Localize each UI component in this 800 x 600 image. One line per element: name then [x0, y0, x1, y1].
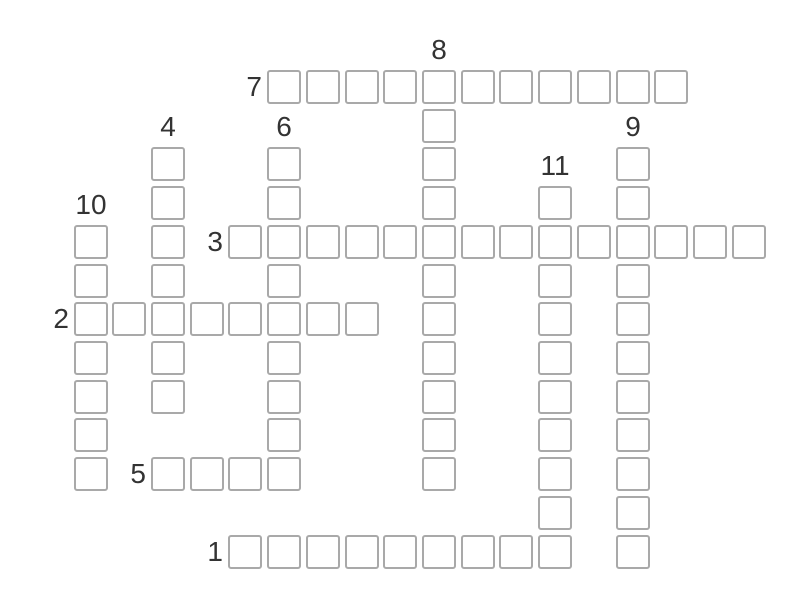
crossword-cell[interactable] [422, 380, 456, 414]
crossword-cell[interactable] [74, 380, 108, 414]
crossword-cell[interactable] [267, 302, 301, 336]
crossword-cell[interactable] [306, 70, 340, 104]
crossword-cell[interactable] [461, 70, 495, 104]
clue-number-6: 6 [254, 111, 314, 143]
crossword-cell[interactable] [190, 457, 224, 491]
crossword-cell[interactable] [267, 535, 301, 569]
crossword-cell[interactable] [538, 380, 572, 414]
crossword-cell[interactable] [538, 302, 572, 336]
crossword-cell[interactable] [577, 225, 611, 259]
crossword-cell[interactable] [538, 341, 572, 375]
crossword-cell[interactable] [151, 147, 185, 181]
crossword-cell[interactable] [383, 225, 417, 259]
crossword-cell[interactable] [538, 70, 572, 104]
crossword-cell[interactable] [345, 70, 379, 104]
clue-number-2: 2 [27, 302, 69, 336]
crossword-cell[interactable] [693, 225, 727, 259]
crossword-cell[interactable] [616, 70, 650, 104]
crossword-cell[interactable] [267, 457, 301, 491]
crossword-cell[interactable] [538, 186, 572, 220]
crossword-cell[interactable] [616, 496, 650, 530]
crossword-cell[interactable] [112, 302, 146, 336]
crossword-cell[interactable] [345, 535, 379, 569]
crossword-cell[interactable] [616, 535, 650, 569]
crossword-cell[interactable] [151, 264, 185, 298]
crossword-cell[interactable] [422, 70, 456, 104]
clue-number-7: 7 [220, 70, 262, 104]
crossword-cell[interactable] [732, 225, 766, 259]
clue-number-11: 11 [525, 150, 585, 182]
crossword-cell[interactable] [267, 418, 301, 452]
crossword-cell[interactable] [228, 225, 262, 259]
crossword-cell[interactable] [499, 225, 533, 259]
crossword-cell[interactable] [616, 264, 650, 298]
crossword-cell[interactable] [151, 341, 185, 375]
crossword-cell[interactable] [538, 535, 572, 569]
crossword-cell[interactable] [306, 302, 340, 336]
crossword-cell[interactable] [422, 418, 456, 452]
crossword-cell[interactable] [306, 225, 340, 259]
crossword-cell[interactable] [151, 186, 185, 220]
crossword-cell[interactable] [422, 341, 456, 375]
crossword-cell[interactable] [267, 341, 301, 375]
crossword-cell[interactable] [499, 70, 533, 104]
crossword-cell[interactable] [74, 418, 108, 452]
crossword-cell[interactable] [267, 380, 301, 414]
crossword-cell[interactable] [461, 225, 495, 259]
crossword-cell[interactable] [267, 225, 301, 259]
crossword-cell[interactable] [383, 70, 417, 104]
crossword-cell[interactable] [616, 302, 650, 336]
crossword-cell[interactable] [228, 535, 262, 569]
crossword-cell[interactable] [74, 341, 108, 375]
crossword-cell[interactable] [422, 147, 456, 181]
clue-number-10: 10 [61, 189, 121, 221]
crossword-cell[interactable] [151, 302, 185, 336]
crossword-cell[interactable] [267, 186, 301, 220]
crossword-cell[interactable] [267, 264, 301, 298]
clue-number-9: 9 [603, 111, 663, 143]
crossword-cell[interactable] [538, 264, 572, 298]
crossword-cell[interactable] [461, 535, 495, 569]
crossword-cell[interactable] [538, 457, 572, 491]
crossword-cell[interactable] [74, 302, 108, 336]
crossword-cell[interactable] [74, 264, 108, 298]
crossword-cell[interactable] [616, 457, 650, 491]
crossword-cell[interactable] [345, 225, 379, 259]
clue-number-5: 5 [104, 457, 146, 491]
crossword-cell[interactable] [654, 70, 688, 104]
crossword-cell[interactable] [422, 302, 456, 336]
crossword-cell[interactable] [577, 70, 611, 104]
clue-number-8: 8 [409, 34, 469, 66]
crossword-cell[interactable] [228, 302, 262, 336]
crossword-cell[interactable] [616, 186, 650, 220]
crossword-cell[interactable] [616, 418, 650, 452]
crossword-cell[interactable] [228, 457, 262, 491]
crossword-cell[interactable] [151, 457, 185, 491]
crossword-cell[interactable] [422, 457, 456, 491]
crossword-grid: 7846911103251 [0, 0, 800, 600]
crossword-cell[interactable] [422, 535, 456, 569]
clue-number-3: 3 [181, 225, 223, 259]
crossword-cell[interactable] [306, 535, 340, 569]
crossword-cell[interactable] [345, 302, 379, 336]
crossword-cell[interactable] [422, 109, 456, 143]
crossword-cell[interactable] [383, 535, 417, 569]
crossword-cell[interactable] [538, 225, 572, 259]
crossword-cell[interactable] [616, 341, 650, 375]
crossword-cell[interactable] [267, 70, 301, 104]
crossword-cell[interactable] [422, 264, 456, 298]
crossword-cell[interactable] [616, 225, 650, 259]
crossword-cell[interactable] [538, 418, 572, 452]
crossword-cell[interactable] [151, 225, 185, 259]
crossword-cell[interactable] [654, 225, 688, 259]
crossword-cell[interactable] [74, 225, 108, 259]
crossword-cell[interactable] [151, 380, 185, 414]
crossword-cell[interactable] [74, 457, 108, 491]
crossword-cell[interactable] [422, 186, 456, 220]
crossword-cell[interactable] [538, 496, 572, 530]
crossword-cell[interactable] [616, 380, 650, 414]
crossword-cell[interactable] [499, 535, 533, 569]
clue-number-1: 1 [181, 535, 223, 569]
crossword-cell[interactable] [616, 147, 650, 181]
crossword-cell[interactable] [422, 225, 456, 259]
clue-number-4: 4 [138, 111, 198, 143]
crossword-cell[interactable] [190, 302, 224, 336]
crossword-cell[interactable] [267, 147, 301, 181]
